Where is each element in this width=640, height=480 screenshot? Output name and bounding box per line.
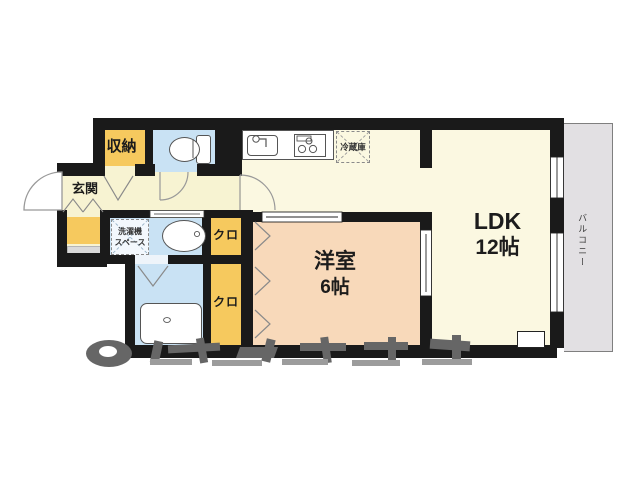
bath-door-gap [135, 255, 168, 264]
bathtub-icon [140, 303, 202, 344]
floorplan-image: LDK 12帖 洋室 6帖 玄関 収納 クロ クロ バルコニー 洗濯機 スペース… [0, 0, 640, 480]
laundry-space-label: 洗濯機 スペース [111, 219, 149, 255]
refrigerator-label: 冷蔵庫 [336, 131, 370, 163]
wall-right-seg3 [550, 312, 564, 348]
wall-washroom-top-left [100, 210, 150, 218]
watermark-fragment [282, 359, 328, 365]
wall-storage-toilet-divider [145, 128, 153, 168]
western-room-size-label: 6帖 [285, 276, 385, 300]
entrance-label: 玄関 [64, 180, 106, 198]
ldk-size-label: 12帖 [450, 234, 545, 262]
wall-kitchen-stub [420, 128, 432, 168]
balcony-window-upper [551, 157, 564, 198]
kitchen-sink-icon [247, 135, 278, 156]
wall-bedroom-top-seg2 [342, 212, 420, 222]
balcony-window-lower [551, 233, 564, 312]
washbasin-icon [162, 220, 206, 252]
wall-kitchen-left [228, 118, 242, 172]
ldk-label: LDK [450, 206, 545, 236]
wall-bedroom-top-seg1 [253, 212, 262, 222]
wall-bedroom-ldk-top [420, 212, 432, 230]
closet-lower-label: クロ [209, 288, 243, 318]
wall-right-seg2 [550, 198, 564, 233]
watermark-fragment [422, 359, 472, 365]
watermark-fragment [99, 346, 117, 357]
pipe-space-notch [517, 331, 545, 348]
watermark-fragment [364, 342, 408, 350]
wall-top [93, 118, 564, 130]
watermark-fragment [352, 360, 400, 366]
wall-right-seg1 [550, 128, 564, 157]
stove-icon [294, 134, 326, 157]
watermark-fragment [150, 359, 192, 365]
balcony-label: バルコニー [572, 200, 592, 280]
toilet-bowl-icon [169, 137, 200, 162]
shoe-cabinet [65, 217, 100, 244]
closet-upper-label: クロ [209, 221, 243, 251]
entrance-door-arc [24, 172, 62, 210]
western-room-label: 洋室 [285, 249, 385, 275]
watermark-fragment [212, 360, 262, 366]
wall-bath-left [125, 258, 135, 348]
storage-label: 収納 [98, 128, 145, 166]
